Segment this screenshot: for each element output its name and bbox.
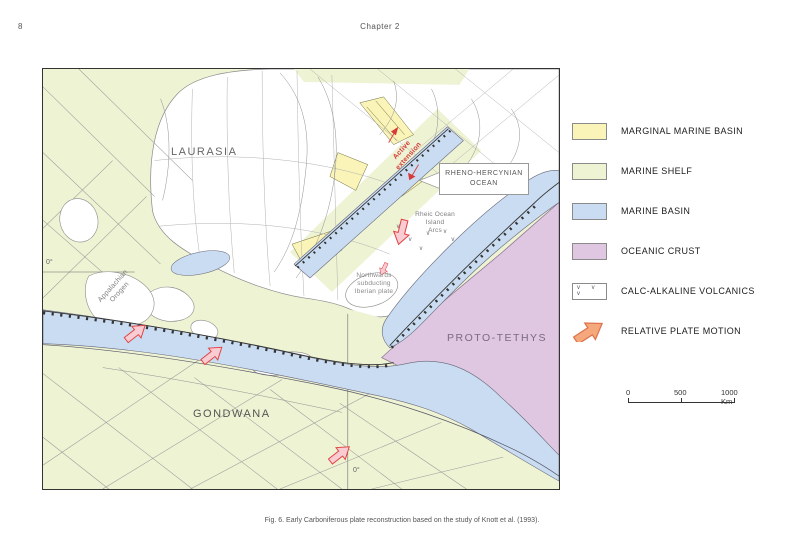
volcanics-swatch: v v v <box>572 283 607 300</box>
label-rheic-ocean-island-arcs: Rheic Ocean Island Arcs <box>403 211 467 235</box>
page-number: 8 <box>18 22 22 31</box>
legend-item-calc-alkaline-volcanics: v v v CALC-ALKALINE VOLCANICS <box>572 282 792 300</box>
oceanic-crust-swatch <box>572 243 607 260</box>
scale-tick-0: 0 <box>626 388 630 397</box>
legend-item-marine-shelf: MARINE SHELF <box>572 162 792 180</box>
label-proto-tethys: PROTO-TETHYS <box>447 332 547 344</box>
marine-shelf-swatch <box>572 163 607 180</box>
equator-label: 0° <box>46 259 53 266</box>
svg-text:v: v <box>451 237 454 243</box>
plate-motion-arrow-icon <box>572 320 608 342</box>
marine-basin-swatch <box>572 203 607 220</box>
label-laurasia: LAURASIA <box>171 146 237 158</box>
meridian-label: 0° <box>353 467 360 474</box>
legend-item-marginal-marine-basin: MARGINAL MARINE BASIN <box>572 122 792 140</box>
label-rheno-hercynian-ocean: RHENO-HERCYNIAN OCEAN <box>439 163 529 195</box>
svg-text:v: v <box>420 246 423 252</box>
map-figure: v v v v v v LAURASIA GONDWANA PROTO-TETH… <box>42 68 560 490</box>
marginal-marine-basin-swatch <box>572 123 607 140</box>
legend-item-oceanic-crust: OCEANIC CRUST <box>572 242 792 260</box>
legend-item-marine-basin: MARINE BASIN <box>572 202 792 220</box>
label-iberian-plate: Northwards subducting Iberian plate <box>348 272 400 296</box>
label-gondwana: GONDWANA <box>193 408 271 420</box>
scale-tick-500: 500 <box>674 388 687 397</box>
running-header: Chapter 2 <box>300 22 460 31</box>
svg-text:v: v <box>409 237 412 243</box>
scale-tick-1000: 1000 Km <box>721 388 750 406</box>
map-legend: MARGINAL MARINE BASIN MARINE SHELF MARIN… <box>572 122 792 340</box>
legend-item-relative-plate-motion: RELATIVE PLATE MOTION <box>572 322 792 340</box>
figure-caption: Fig. 6. Early Carboniferous plate recons… <box>42 517 762 524</box>
scale-bar: 0 500 1000 Km <box>628 390 750 412</box>
document-page: { "page": { "number": "8", "header": "Ch… <box>0 0 800 551</box>
